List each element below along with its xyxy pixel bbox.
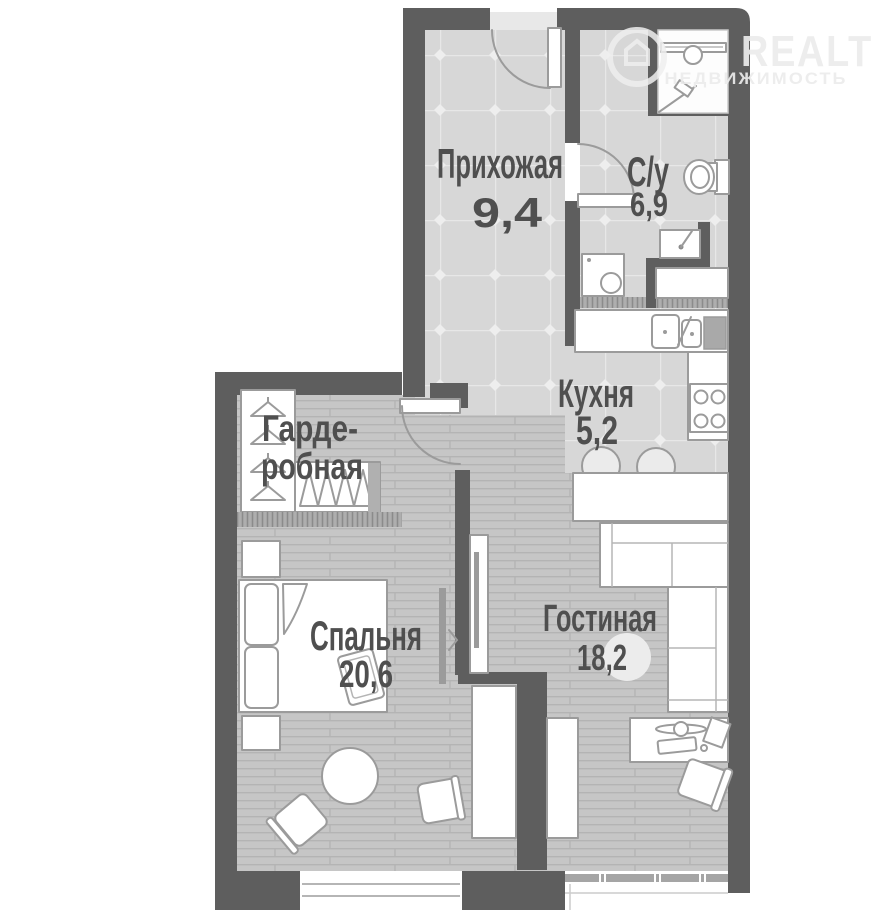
closet-shelf-band [237,512,402,527]
tv-icon [439,588,446,684]
wardrobe-label-line2: робная [261,446,363,487]
bedroom-living-divider-wall [455,470,470,675]
living-cabinet [547,718,578,838]
washing-machine-icon [582,254,624,296]
bottom-wall-center-block [462,871,565,910]
left-outer-wall [215,372,237,893]
kitchen-sink-icon [652,315,701,348]
living-label: Гостиная [543,598,657,640]
chair-icon [416,776,465,827]
living-window-icon [565,871,728,910]
nightstand [242,541,280,577]
duct-left-wall [646,258,656,308]
entrance-threshold [490,12,557,30]
bathroom-area: 6,9 [630,186,668,224]
washer-knob [587,258,591,262]
sink-drain-left [663,330,667,334]
bedroom-door-leaf [400,399,460,413]
tv-icon [474,552,479,648]
bathroom-wall-upper [565,30,580,143]
table-icon [322,748,378,804]
living-area: 18,2 [577,637,627,678]
basin-icon [660,230,700,258]
keyboard [657,737,696,754]
sofa-side-section [668,587,728,712]
shower-head-icon [684,46,702,64]
kitchen-area: 5,2 [576,409,618,453]
basin-body [660,230,700,258]
monitor-stand [674,722,688,736]
entrance-door-leaf [548,28,561,87]
bedroom-window-sill [300,871,462,910]
hallway-label: Прихожая [437,140,563,187]
sink-drain-right [690,332,694,336]
divider-pier-wall [517,672,547,870]
bedroom-window-icon [300,871,462,910]
draining-board [704,317,726,349]
bedroom-cabinet [472,686,516,838]
watermark-tagline: НЕДВИЖИМОСТЬ [665,69,848,88]
stove-icon [690,384,728,432]
hallway-left-wall [403,8,425,397]
nightstand [242,716,280,750]
bedroom-label: Спальня [310,612,422,659]
hallway-area: 9,4 [472,189,543,236]
bar-counter [573,473,728,521]
pillow [245,647,278,708]
pillow [245,584,278,645]
bedroom-area: 20,6 [339,654,393,696]
desk-icon [630,717,731,762]
watermark: REALT НЕДВИЖИМОСТЬ [610,27,873,88]
bathroom-door-leaf [578,194,635,207]
bottom-wall-left-block [215,871,300,910]
closet-end-panel [368,463,380,513]
living-window-frame [565,874,728,882]
wardrobe-label-line1: Гарде- [262,408,358,449]
sofa-top-section [600,523,728,587]
floorplan-image: Прихожая 9,4 С/у 6,9 Кухня 5,2 Гарде- ро… [0,0,885,910]
toilet-icon [684,160,729,194]
duct-cabinet [656,268,728,298]
floorplan-svg: Прихожая 9,4 С/у 6,9 Кухня 5,2 Гарде- ро… [0,0,885,910]
